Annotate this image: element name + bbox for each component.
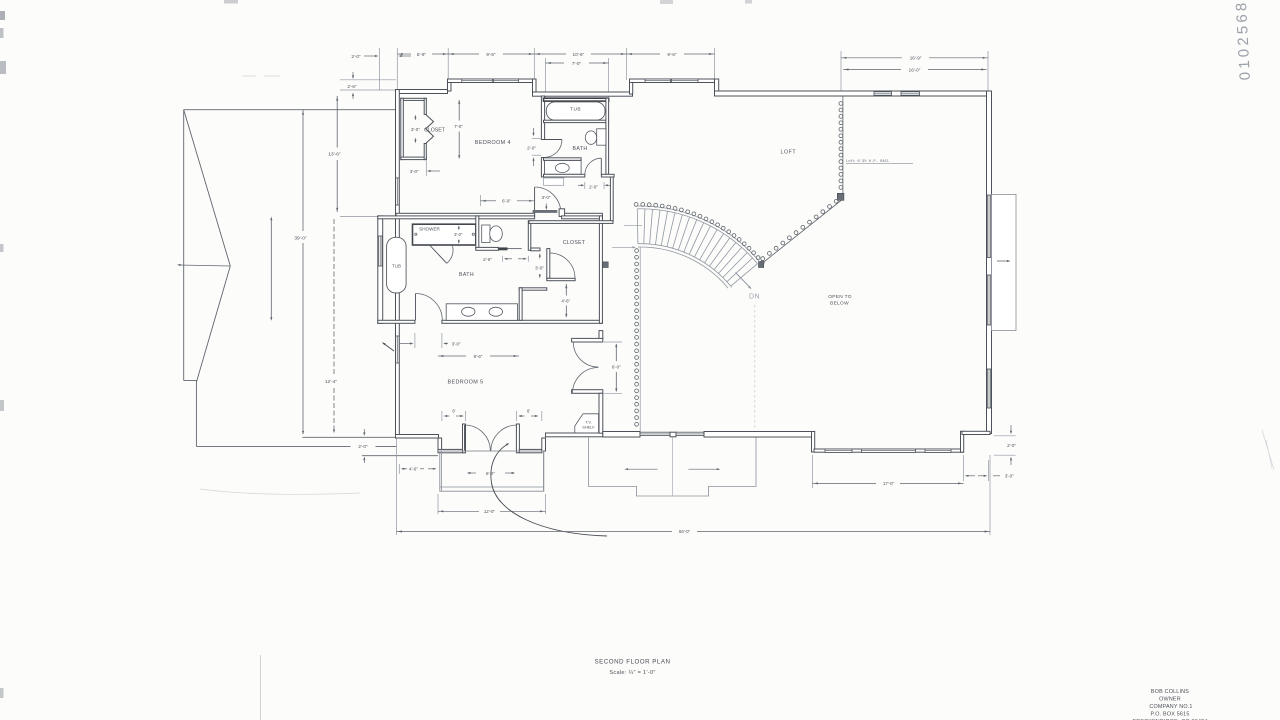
svg-text:4′-6″: 4′-6″ [561,299,570,304]
svg-text:SHELF: SHELF [582,425,595,430]
svg-text:CLOSET: CLOSET [424,127,446,133]
svg-text:12′-0″: 12′-0″ [484,509,496,514]
svg-text:BATH: BATH [572,146,587,152]
svg-text:2′-0″: 2′-0″ [589,185,598,190]
svg-text:3′-0″: 3′-0″ [452,342,461,347]
svg-text:BOB COLLINS: BOB COLLINS [1151,689,1189,695]
svg-text:6′-0″: 6′-0″ [612,365,621,370]
svg-text:6′: 6′ [452,408,455,413]
svg-text:12′-4″: 12′-4″ [325,379,338,385]
svg-text:3′-0″: 3′-0″ [542,195,551,200]
svg-text:Loft 6′3½ H.P. RAIL: Loft 6′3½ H.P. RAIL [846,159,890,164]
svg-text:DN: DN [749,293,760,300]
svg-text:BATH: BATH [459,272,474,278]
svg-text:LOFT: LOFT [780,150,796,156]
svg-text:T.V.: T.V. [585,419,591,424]
svg-text:OWNER: OWNER [1159,696,1181,702]
svg-text:3′-0″: 3′-0″ [454,232,463,237]
svg-text:17′-0″: 17′-0″ [883,481,895,486]
svg-text:39′-0″: 39′-0″ [294,235,307,241]
svg-text:5′-9″: 5′-9″ [417,52,427,57]
svg-text:Scale: ¼″ = 1′-0″: Scale: ¼″ = 1′-0″ [609,670,655,676]
svg-text:TUB: TUB [570,107,581,113]
svg-text:BELOW: BELOW [830,300,849,306]
svg-text:BEDROOM 4: BEDROOM 4 [475,140,511,146]
svg-text:7′-0″: 7′-0″ [454,124,463,129]
svg-text:TUB: TUB [392,263,401,268]
svg-text:16′-0″: 16′-0″ [909,67,921,72]
svg-text:9′-6″: 9′-6″ [667,52,677,57]
svg-text:66′-0″: 66′-0″ [679,529,691,534]
svg-text:2′-0″: 2′-0″ [1007,443,1016,448]
svg-text:2′-6″: 2′-6″ [483,257,492,262]
svg-text:9′-6″: 9′-6″ [486,52,496,57]
svg-text:2′-0″: 2′-0″ [351,54,361,59]
svg-text:OPEN TO: OPEN TO [828,294,852,300]
svg-text:16′-9″: 16′-9″ [910,56,922,61]
svg-text:3′-0″: 3′-0″ [411,127,420,132]
svg-text:7′-0″: 7′-0″ [572,61,582,66]
svg-text:6′: 6′ [527,408,530,413]
svg-text:P.O. BOX 5615: P.O. BOX 5615 [1150,711,1189,717]
svg-text:10′-6″: 10′-6″ [573,52,585,57]
svg-text:3′-0″: 3′-0″ [1005,474,1014,479]
svg-text:2′-0″: 2′-0″ [358,444,368,449]
svg-text:BEDROOM 5: BEDROOM 5 [448,379,484,385]
svg-text:3′-0″: 3′-0″ [410,169,419,174]
svg-text:CLOSET: CLOSET [563,240,586,246]
svg-text:2′-0″: 2′-0″ [527,145,536,150]
svg-text:13′-6″: 13′-6″ [328,152,341,158]
svg-text:4′-6″: 4′-6″ [409,467,418,472]
svg-text:3′-0″: 3′-0″ [535,265,544,270]
svg-text:2′-6″: 2′-6″ [347,84,357,89]
svg-text:COMPANY NO.1: COMPANY NO.1 [1149,704,1192,710]
svg-text:SHOWER: SHOWER [419,227,440,232]
svg-text:9′-6″: 9′-6″ [474,354,483,359]
svg-text:6′-0″: 6′-0″ [502,199,511,204]
svg-text:SECOND FLOOR PLAN: SECOND FLOOR PLAN [595,659,671,666]
